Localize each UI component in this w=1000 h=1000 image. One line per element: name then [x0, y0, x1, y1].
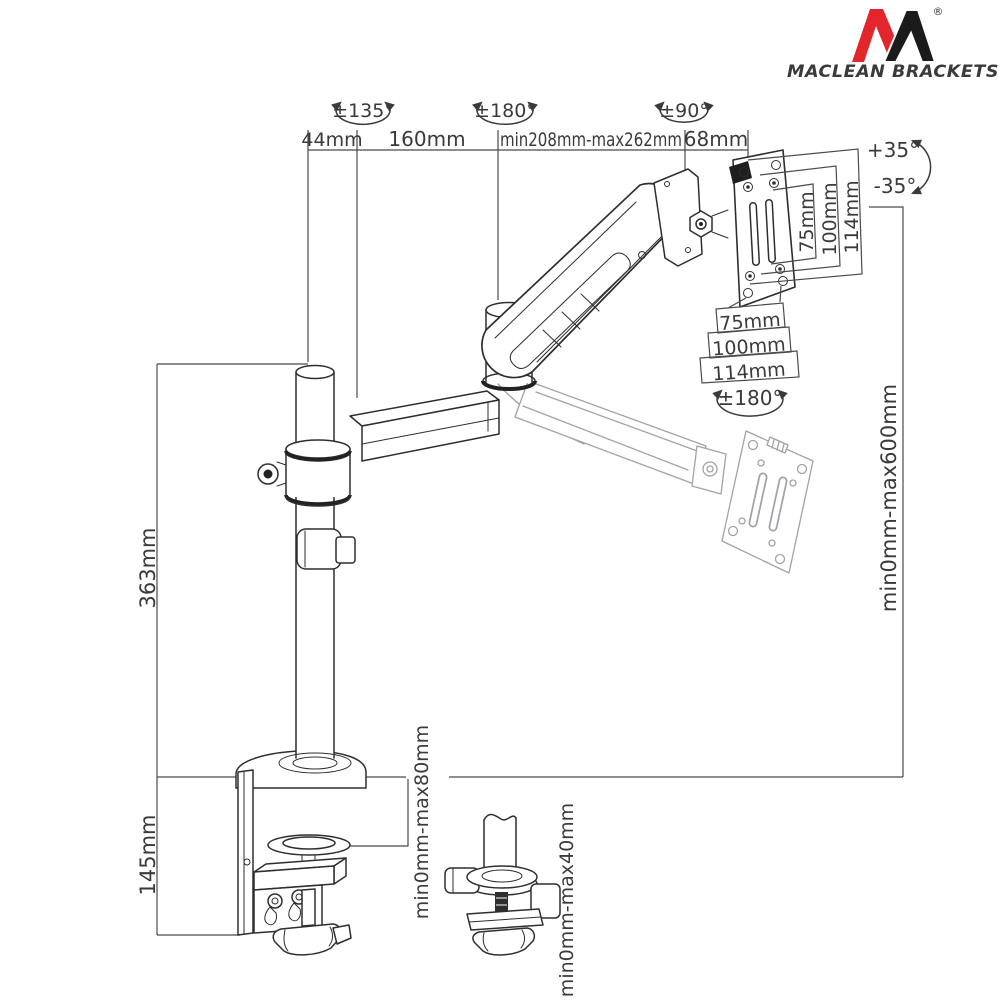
vesa-v-114: 114mm: [841, 180, 863, 253]
vesa-v-100: 100mm: [819, 182, 841, 255]
vesa-h-114: 114mm: [712, 358, 787, 385]
clamp-screw: [302, 889, 315, 926]
monitor-arm-drawing: [236, 150, 795, 955]
rot-135-label: ±135°: [332, 100, 394, 122]
height-range-label: min0mm-max600mm: [877, 384, 901, 612]
tilt-down-label: -35°: [874, 174, 917, 198]
vesa-v-75: 75mm: [796, 191, 818, 252]
technical-drawing-page: 44mm 160mm min208mm-max262mm 68mm ±135° …: [0, 0, 1000, 1000]
desk-clamp: [238, 770, 351, 955]
grommet-mount: [445, 814, 560, 954]
clamp-height-label: 145mm: [136, 815, 160, 896]
rot-90-label: ±90°: [659, 100, 709, 122]
desk-thickness-label: min0mm-max80mm: [411, 725, 433, 919]
arm-hub: [258, 440, 350, 506]
dim-208-262mm: min208mm-max262mm: [500, 129, 682, 151]
tilt-head: [654, 169, 728, 266]
logo-brand-text: MACLEAN BRACKETS: [787, 62, 999, 82]
maclean-logo: ® MACLEAN BRACKETS: [787, 5, 999, 82]
rot-180-top-label: ±180°: [474, 100, 536, 122]
lower-arm: [350, 391, 499, 461]
ghost-vesa-plate: [722, 431, 813, 573]
rot-180-vesa-label: ±180°: [718, 386, 783, 410]
dim-68mm: 68mm: [684, 127, 748, 151]
tilt-up-label: +35°: [867, 138, 919, 162]
logo-registered-mark: ®: [933, 5, 944, 18]
monitor-mount-technical-drawing: 44mm 160mm min208mm-max262mm 68mm ±135° …: [0, 0, 1000, 1000]
gas-spring-arm: [482, 184, 679, 378]
dim-44mm: 44mm: [301, 129, 362, 151]
cable-clip: [297, 529, 355, 569]
grommet-wing-nut: [473, 928, 534, 955]
vesa-h-100: 100mm: [712, 333, 787, 360]
dim-160mm: 160mm: [388, 127, 465, 151]
vesa-h-75: 75mm: [719, 309, 782, 335]
grommet-thickness-label: min0mm-max40mm: [556, 803, 578, 997]
pole-height-label: 363mm: [136, 528, 160, 609]
